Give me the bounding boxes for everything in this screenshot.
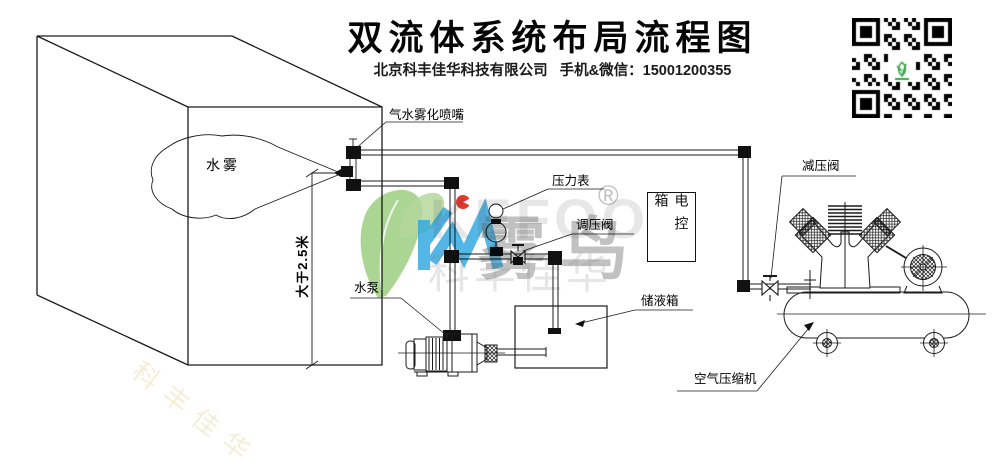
reducing-valve-label: 减压阀 <box>802 160 840 174</box>
nozzle-assembly-icon <box>334 139 361 191</box>
intercooler-fins <box>828 206 862 234</box>
reducing-valve-icon <box>762 276 778 301</box>
qr-code <box>852 18 952 118</box>
air-compressor-label: 空气压缩机 <box>694 373 757 387</box>
contact-info: 手机&微信：15001200355 <box>560 63 732 79</box>
pipe-fittings <box>443 146 751 341</box>
nozzle-label: 气水雾化喷嘴 <box>389 109 464 123</box>
water-pump-label: 水泵 <box>354 282 379 296</box>
qr-code-canvas <box>852 18 952 118</box>
regulating-valve-icon <box>511 245 525 265</box>
liquid-tank-icon <box>515 306 607 368</box>
company-name: 北京科丰佳华科技有限公司 <box>374 63 548 79</box>
pressure-gauge-icon <box>486 204 506 247</box>
page-title: 双流体系统布局流程图 <box>325 10 780 61</box>
mount-height-label: 大于2.5米 <box>296 221 310 311</box>
height-dimension-line <box>306 169 340 369</box>
mist-cloud <box>151 135 338 219</box>
company-contact-line: 北京科丰佳华科技有限公司 手机&微信：15001200355 <box>325 59 780 80</box>
room-box <box>37 36 382 365</box>
flow-diagram-page: KEFOO 雾鸟 科丰佳华 ® 科丰佳华 双流体系统布局流程图 北京科丰佳华科技… <box>0 0 992 460</box>
liquid-tank-label: 储液箱 <box>641 295 679 309</box>
electric-control-box: 电控箱 <box>647 192 696 262</box>
compressor-wheels <box>813 329 948 357</box>
electric-control-box-label: 电控箱 <box>652 193 692 261</box>
regulating-valve-label: 调压阀 <box>576 219 614 233</box>
pressure-gauge-label: 压力表 <box>552 175 590 189</box>
water-pump-icon <box>398 334 505 376</box>
water-mist-label: 水雾 <box>206 158 240 173</box>
